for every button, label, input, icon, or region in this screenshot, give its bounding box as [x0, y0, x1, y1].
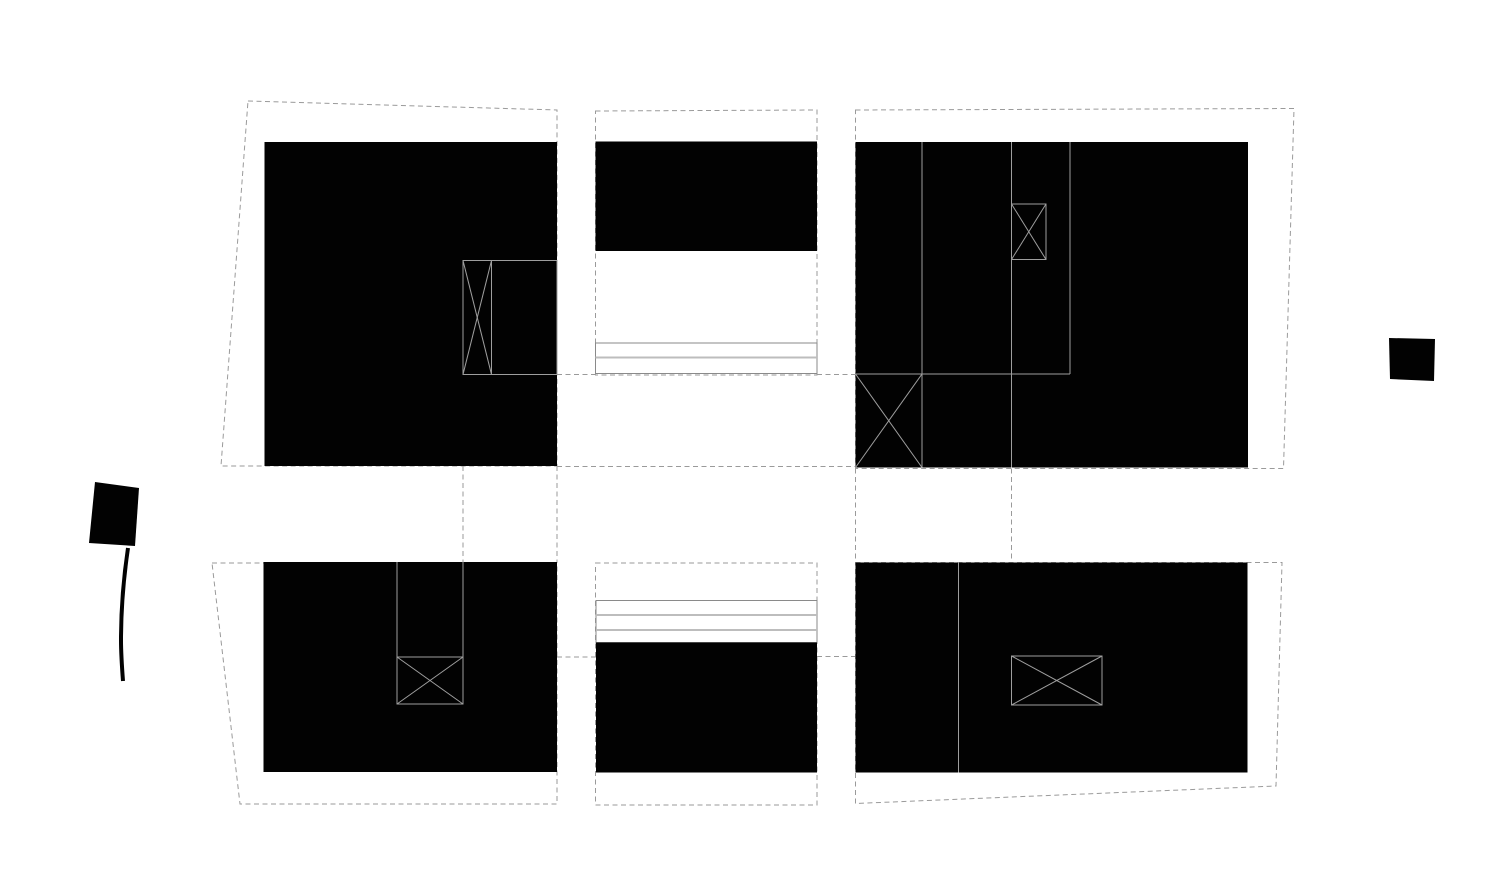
site-plan-drawing	[0, 0, 1512, 894]
small-block-east	[1389, 338, 1435, 381]
flag-symbol-west	[89, 482, 139, 546]
building-mass-top-left	[265, 142, 558, 466]
steps-strip-bottom-middle	[596, 601, 817, 643]
building-mass-bottom-middle	[596, 643, 817, 773]
site-plan-page	[0, 0, 1512, 894]
flag-symbol-west-tail	[121, 548, 128, 681]
building-mass-top-middle	[596, 142, 818, 252]
building-mass-bottom-right	[856, 563, 1248, 773]
building-mass-top-right	[856, 142, 1249, 468]
